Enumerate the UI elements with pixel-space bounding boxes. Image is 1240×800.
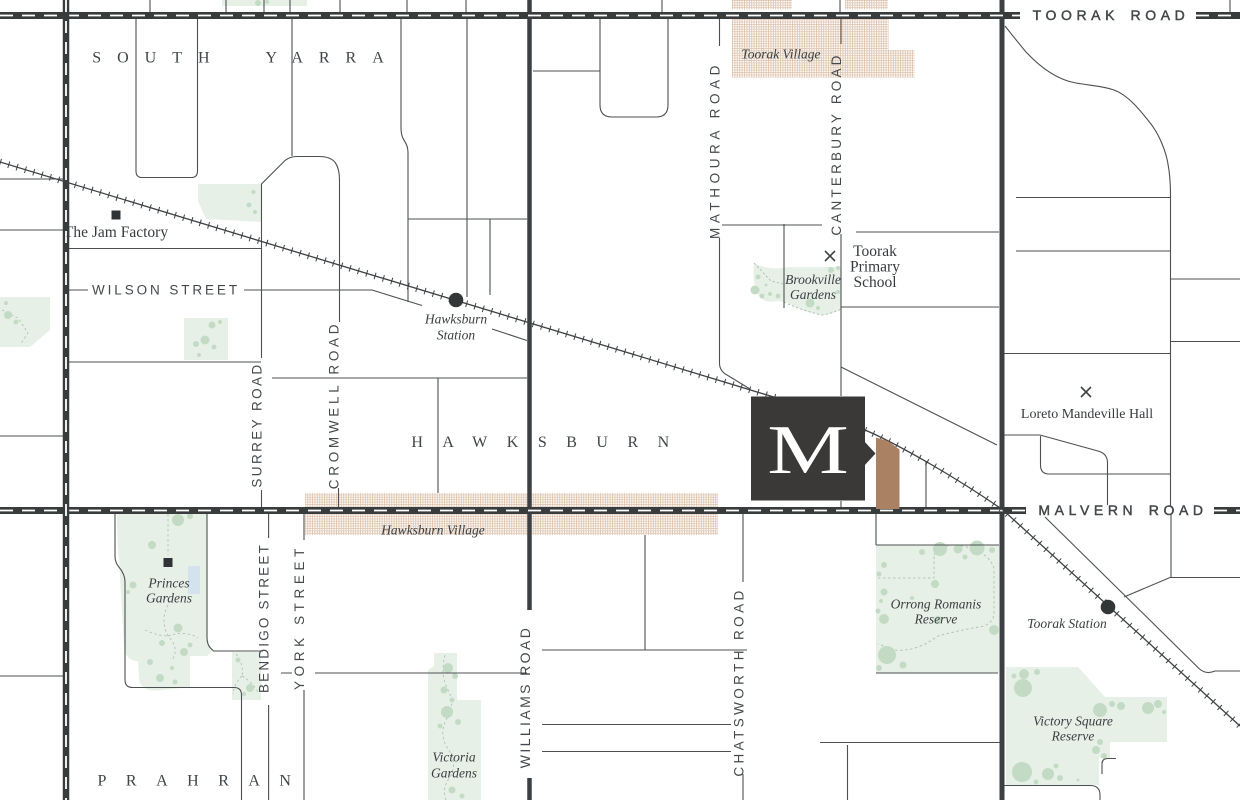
svg-text:BENDIGO STREET: BENDIGO STREET <box>257 543 272 693</box>
svg-text:HAWKSBURN: HAWKSBURN <box>411 434 688 451</box>
svg-text:Toorak: Toorak <box>853 243 897 260</box>
svg-text:WILSON STREET: WILSON STREET <box>92 283 240 298</box>
svg-text:Hawksburn Village: Hawksburn Village <box>380 523 485 538</box>
svg-text:Princes: Princes <box>147 576 189 591</box>
svg-text:Victoria: Victoria <box>432 750 475 765</box>
svg-text:M: M <box>767 411 849 489</box>
svg-text:CROMWELL ROAD: CROMWELL ROAD <box>327 321 342 489</box>
svg-text:Toorak Station: Toorak Station <box>1027 616 1107 631</box>
svg-text:Gardens: Gardens <box>431 766 477 781</box>
svg-text:MATHOURA ROAD: MATHOURA ROAD <box>708 61 723 239</box>
svg-text:Gardens: Gardens <box>146 591 192 606</box>
svg-text:Loreto Mandeville Hall: Loreto Mandeville Hall <box>1021 407 1153 422</box>
svg-text:Brookville: Brookville <box>785 272 841 287</box>
svg-text:Hawksburn: Hawksburn <box>424 312 488 327</box>
svg-text:Toorak Village: Toorak Village <box>741 47 820 62</box>
svg-text:Station: Station <box>437 328 476 343</box>
svg-text:Reserve: Reserve <box>914 612 958 627</box>
svg-text:School: School <box>853 274 896 291</box>
svg-text:TOORAK ROAD: TOORAK ROAD <box>1033 7 1190 23</box>
svg-text:PRAHRAN: PRAHRAN <box>98 773 311 790</box>
svg-text:Gardens: Gardens <box>790 287 836 302</box>
svg-text:Victory Square: Victory Square <box>1033 714 1113 729</box>
svg-text:CANTERBURY ROAD: CANTERBURY ROAD <box>829 52 844 235</box>
svg-text:SURREY ROAD: SURREY ROAD <box>250 362 265 487</box>
svg-text:CHATSWORTH ROAD: CHATSWORTH ROAD <box>732 587 747 776</box>
svg-text:MALVERN ROAD: MALVERN ROAD <box>1038 502 1207 518</box>
svg-text:Orrong Romanis: Orrong Romanis <box>891 597 982 612</box>
svg-text:SOUTH YARRA: SOUTH YARRA <box>92 50 400 67</box>
svg-text:WILLIAMS ROAD: WILLIAMS ROAD <box>517 626 533 768</box>
svg-text:Reserve: Reserve <box>1051 729 1095 744</box>
svg-text:YORK STREET: YORK STREET <box>292 544 307 690</box>
svg-text:The Jam Factory: The Jam Factory <box>64 224 168 241</box>
svg-text:Primary: Primary <box>850 259 900 276</box>
